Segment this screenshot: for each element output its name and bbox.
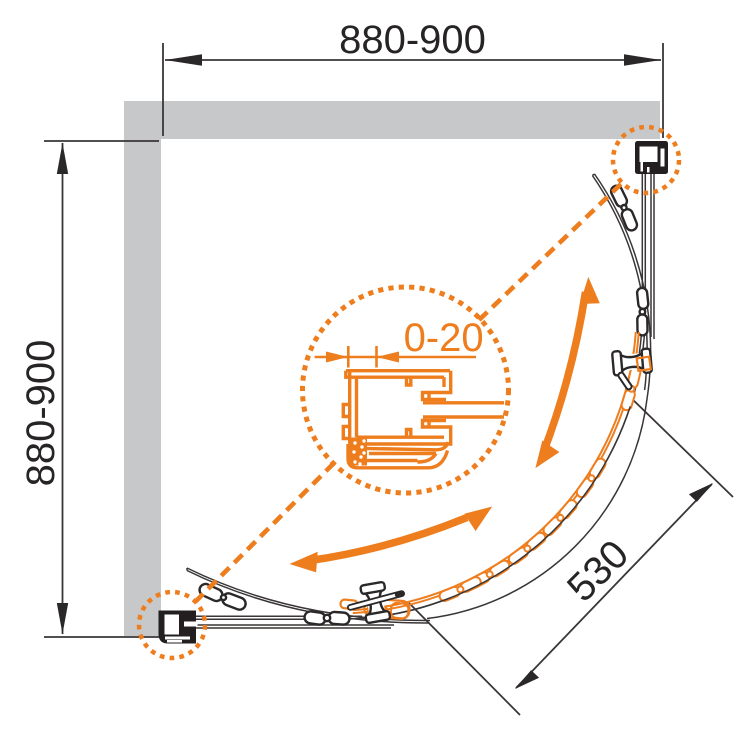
svg-text:880-900: 880-900 <box>19 340 63 487</box>
svg-text:0-20: 0-20 <box>404 316 484 360</box>
svg-text:880-900: 880-900 <box>339 18 486 62</box>
